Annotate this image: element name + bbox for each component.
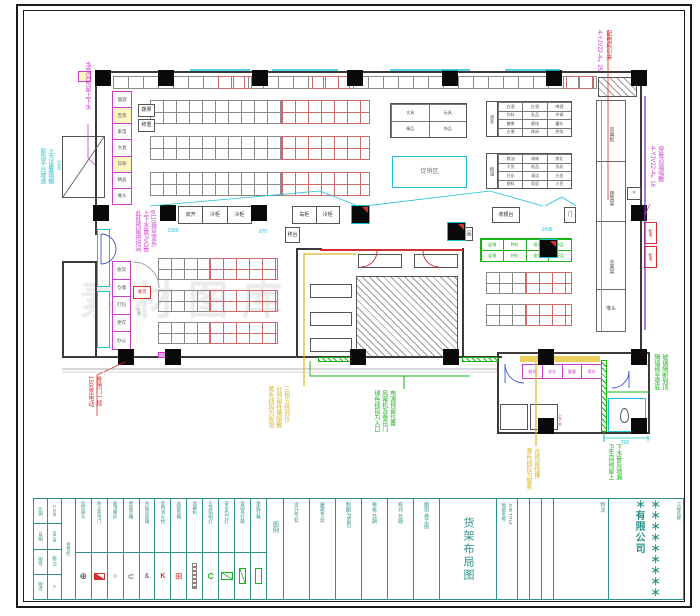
list-item: 家居 <box>522 180 546 189</box>
column <box>631 70 647 86</box>
category-grid: 酒水 白酒红酒啤酒饮料乳品冲调糖果蜜饯罐头方便休闲烘焙 <box>486 101 572 137</box>
room-fixture <box>310 338 352 352</box>
list-item: 塑料 <box>498 180 522 189</box>
speaker-icon: ○ <box>113 573 117 580</box>
gate-label-box: 门 <box>564 207 576 223</box>
emergency-light-icon: C <box>208 572 214 581</box>
company-name: ＊＊＊＊＊＊＊＊＊＊有限公司 <box>631 499 661 599</box>
column <box>350 349 366 365</box>
note-left-top: 净菜间预留上下水 <box>83 62 90 110</box>
note-toilet-green: 卫生间预留上下水管及地漏 <box>606 444 621 480</box>
tb-note: 特注: <box>554 499 610 599</box>
list-item: 台预留线槽 <box>532 448 539 490</box>
checkout-boxes: 双开 冷柜 冷柜 <box>178 206 252 224</box>
tb-project: 工程名称: ＊＊＊＊＊＊＊＊＊＊有限公司 <box>609 499 683 599</box>
column <box>631 205 647 221</box>
project-label: 工程名称: <box>676 502 682 521</box>
cashier-label-box: 收银台 <box>492 207 520 223</box>
list-item: 烘焙 <box>547 128 571 137</box>
annex-fixtures: 服务 总台 客服 寄存 <box>522 364 602 379</box>
tb-drawing-title-label: 图纸名称: JOB TITLE <box>497 499 518 599</box>
list-item: 日化 <box>498 171 522 180</box>
loading-ramp <box>62 136 105 198</box>
grid-label: 粮油 <box>487 154 498 188</box>
room-fixture <box>310 312 352 326</box>
tb-fields: 设计专业: 建筑专业: 制图:PM&D 审核:日期 校对:日期 图别:施工图 <box>284 499 440 599</box>
annex-yellow-band <box>520 356 600 362</box>
list-item: 4-YJV22-4×25 <box>595 30 602 71</box>
dual-speaker-icon: & <box>145 573 150 580</box>
list-item: 粮油 <box>498 154 522 163</box>
list-item: 白酒 <box>498 102 522 111</box>
shelf-bank <box>150 136 370 160</box>
power-box: 配电 <box>644 222 657 244</box>
dim-1500: 1500 <box>158 227 188 235</box>
annex-wall-right <box>648 352 650 434</box>
list-item: 净菜间预留上下水 <box>83 62 90 110</box>
list-item: 休闲 <box>522 128 546 137</box>
room-fixture <box>310 284 352 298</box>
dim-1436: 1436 <box>532 226 562 234</box>
column <box>443 349 459 365</box>
wall-shelving-red <box>218 76 252 89</box>
power-box-icon: ⊞ <box>175 571 183 582</box>
list-item: φ110排至室外 <box>149 210 156 252</box>
exit-sign-icon <box>221 572 233 580</box>
toilet-fixture <box>620 408 629 423</box>
tb-drawing-title: 货架布局图 <box>440 499 497 599</box>
bl-fixture-stack: 收货仓储 打包更衣 办公 <box>112 262 131 350</box>
x-box: ✕ <box>627 187 641 200</box>
note-cable-right: 4-YJV22-4×16穿管沿墙暗敷 <box>648 146 663 187</box>
annex-wall-bottom <box>497 432 650 434</box>
entrance-hatch <box>356 276 458 358</box>
camera-icon: ⊕ <box>80 572 88 581</box>
column <box>165 349 181 365</box>
column <box>251 205 267 221</box>
power-box: 配电 <box>644 246 657 268</box>
note-left-cyan: 卸货平台坡道上方设置雨棚 <box>38 148 53 184</box>
annex-wall-top <box>497 352 650 354</box>
column <box>631 349 647 365</box>
list-item: 纸品 <box>522 163 546 172</box>
service-desk <box>358 254 402 268</box>
corridor-label: 水果架 <box>602 244 622 288</box>
note-green-entrance: 绿色线段为入口风幕机及卷帘门电源预留位置 <box>372 390 395 432</box>
list-item: 黄色线段为收银 <box>266 386 273 428</box>
list-item: 清洁 <box>522 171 546 180</box>
list-item: 绿色线段为入口 <box>372 390 379 432</box>
annex-table <box>500 404 528 430</box>
column <box>158 70 174 86</box>
column <box>546 70 562 86</box>
annex-wall-left <box>497 352 499 434</box>
note-annex-green: 隔墙砌至梁底玻璃隔断到顶 <box>652 354 667 390</box>
wall-shelving-red <box>566 76 594 89</box>
list-item: 饰品 <box>429 121 467 138</box>
column <box>347 70 363 86</box>
list-item: 此处预留烘焙间 <box>133 210 140 252</box>
list-item: 三相五线到位 <box>282 386 289 428</box>
small-label-box: 蔬果 <box>138 104 155 117</box>
list-item: 促销 <box>481 250 505 262</box>
corridor-end-label: 堆头 <box>598 296 624 320</box>
list-item: 糖果 <box>498 119 522 128</box>
shelf-bank <box>158 322 278 344</box>
corridor-label: 蔬菜架 <box>602 176 622 220</box>
list-item: 方便 <box>498 128 522 137</box>
list-item: 上方设置雨棚 <box>46 148 53 184</box>
column <box>93 205 109 221</box>
tb-revision-cols <box>518 499 554 599</box>
list-item: 蜜饯 <box>522 119 546 128</box>
wall-speaker-icon: ⊂ <box>128 572 135 581</box>
note-yellow-cashier: 黄色线段为收银台预留线槽暗敷三相五线到位 <box>266 386 289 428</box>
list-item: 冲调 <box>547 111 571 120</box>
promo-area-box: 促销区 <box>392 156 467 188</box>
room-wall-right <box>462 248 464 356</box>
note-power-magenta: 4-YJV22-4×25 <box>595 30 602 71</box>
legend-header: 图例 <box>270 521 279 533</box>
wall-step <box>62 261 97 263</box>
dim-970: 970 <box>250 228 276 236</box>
fire-shutter-icon <box>94 573 105 580</box>
shelf-bank <box>486 304 572 326</box>
list-item: 罐头 <box>547 119 571 128</box>
checkout-boxes: 岛柜 冷柜 <box>292 206 340 224</box>
list-item: 红酒 <box>522 102 546 111</box>
list-item: 台预留线槽暗敷 <box>274 386 281 428</box>
list-item: 上下水管PVC管 <box>141 210 148 252</box>
air-curtain-icon <box>192 563 197 589</box>
single-lightbox-icon <box>255 568 262 584</box>
list-item: 卷闸门一樘 <box>94 376 101 407</box>
list-item: 风幕机及卷帘门 <box>380 390 387 432</box>
red-fixture-box: 收货 <box>133 286 151 299</box>
room-wall-top <box>296 248 322 250</box>
list-item: 小百 <box>547 180 571 189</box>
shelf-bank <box>486 272 572 294</box>
list-item: 卸货平台坡道 <box>38 148 45 184</box>
note-annex-yellow: 黄色线段为服务台预留线槽 <box>524 448 539 490</box>
note-label: 特注: <box>599 502 606 513</box>
double-lightbox-icon <box>239 568 246 584</box>
shelf-bank <box>158 258 278 280</box>
list-item: 精品 <box>391 121 429 138</box>
room-wall-left <box>296 248 298 356</box>
note-rollup-door: 1500宽电动卷闸门一樘 <box>86 376 101 407</box>
title-block: 比例 日期 图号 版次 1:100 08.06 施-01 A 会签栏 监控探头⊕… <box>33 498 684 600</box>
small-label-box: 称重 <box>138 119 155 132</box>
entrance-threshold-green <box>318 357 352 362</box>
entrance-threshold-green <box>462 357 498 362</box>
cooler-cabinet <box>97 229 110 287</box>
wall-left-outer <box>62 261 64 358</box>
column <box>538 418 554 434</box>
cooler-cabinet <box>97 291 110 348</box>
hydrant-icon: K <box>160 573 165 580</box>
island-table: 文具玩具精品饰品 <box>390 103 467 138</box>
list-item: 啤酒 <box>547 102 571 111</box>
tb-info: 比例 日期 图号 版次 1:100 08.06 施-01 A 会签栏 <box>34 499 76 599</box>
shelf-bank <box>158 290 278 312</box>
list-item: 穿管沿墙暗敷 <box>656 146 663 187</box>
list-item: 调味 <box>522 154 546 163</box>
grid-label: 酒水 <box>487 102 498 136</box>
wall-shelving-red <box>312 76 350 89</box>
column <box>442 70 458 86</box>
shelf-bank <box>150 172 370 196</box>
list-item: 4-YJV22-4×16 <box>648 146 655 187</box>
note-power-red: 配电房引来 <box>604 30 611 60</box>
service-desk <box>414 254 458 268</box>
list-item: 玻璃隔断到顶 <box>660 354 667 390</box>
drawing-sheet: 素材图库 促销特价堆头新品促销特价堆 <box>0 0 700 616</box>
promo-green-table: 促销特价堆头新品促销特价堆头新品 <box>480 238 572 262</box>
list-item: 饮料 <box>498 111 522 120</box>
list-item: 特价 <box>503 250 527 262</box>
shelf-bank <box>150 100 370 124</box>
security-gate <box>352 206 369 223</box>
list-item: 下水管及地漏 <box>614 444 621 480</box>
security-gate <box>448 223 465 240</box>
list-item: 干货 <box>498 163 522 172</box>
column <box>252 70 268 86</box>
column <box>95 70 111 86</box>
list-item: 配电房引来 <box>604 30 611 60</box>
list-item: 乳品 <box>522 111 546 120</box>
note-left-mid: 此处预留烘焙间上下水管PVC管φ110排至室外 <box>133 210 156 252</box>
list-item: 五金 <box>547 171 571 180</box>
list-item: 玩具 <box>429 104 467 121</box>
column <box>631 418 647 434</box>
security-gate <box>540 240 557 257</box>
ramp-dim: 3000 <box>54 150 62 180</box>
tb-legend: 监控探头⊕ 防火卷帘门 吸顶喇叭○ 壁挂音箱⊂ 吊挂双音箱& 室内消火栓K 总配… <box>76 499 284 599</box>
list-item: 南北 <box>547 154 571 163</box>
list-item: 1500宽电动 <box>86 376 93 407</box>
category-grid: 粮油 粮油调味南北干货纸品洗化日化清洁五金塑料家居小百 <box>486 153 572 189</box>
corridor-label: 风幕柜 <box>602 112 622 156</box>
list-item: 文具 <box>391 104 429 121</box>
column <box>538 349 554 365</box>
drawing-title: 货架布局图 <box>460 517 476 582</box>
list-item: 黄色线段为服务 <box>524 448 531 490</box>
small-label-box: 称台 <box>285 227 300 243</box>
list-item: 电源预留位置 <box>388 390 395 432</box>
left-fixture-stack: 烟酒百货 家电文具 日杂精品 堆头 <box>112 92 132 205</box>
list-item: 卫生间预留上 <box>606 444 613 480</box>
list-item: 隔墙砌至梁底 <box>652 354 659 390</box>
room-wall-red <box>320 249 463 251</box>
list-item: 洗化 <box>547 163 571 172</box>
column <box>118 349 134 365</box>
column <box>160 205 176 221</box>
